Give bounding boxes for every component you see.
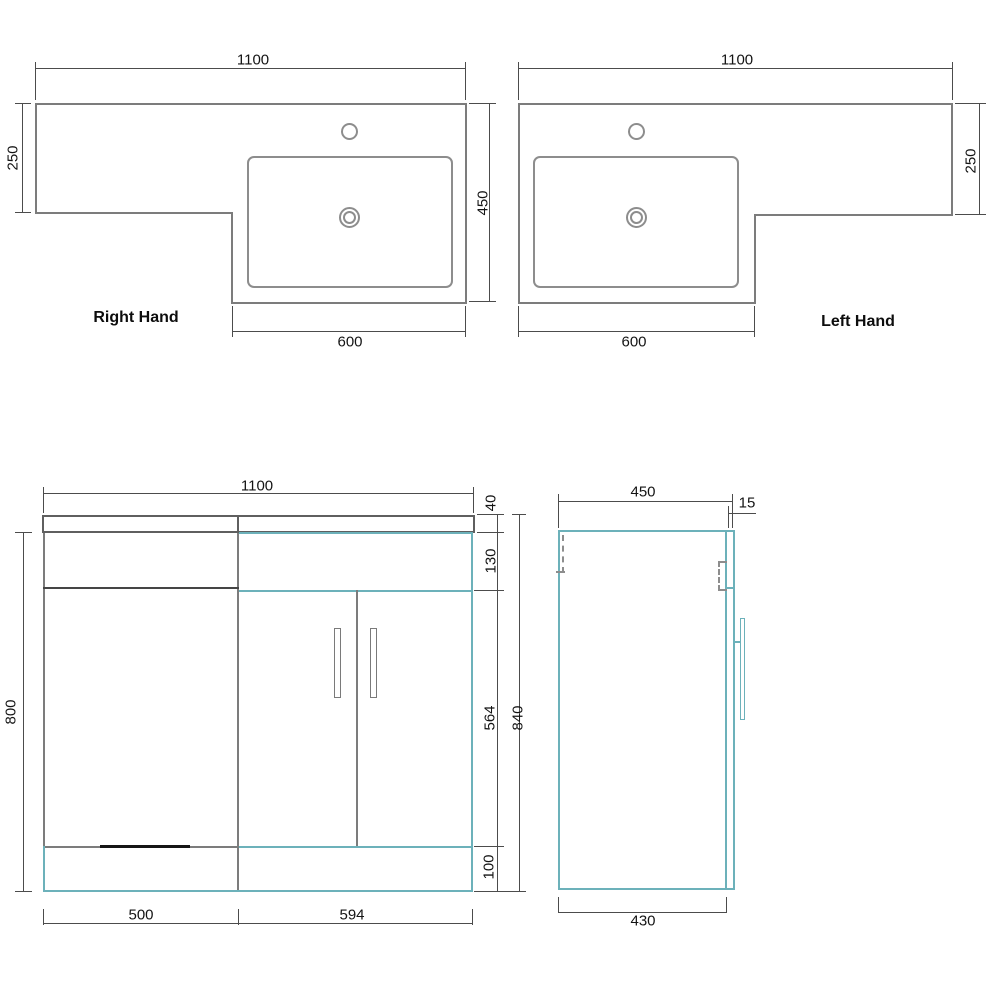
side-door-face [733, 530, 735, 890]
tick [955, 103, 986, 104]
tick [238, 909, 239, 925]
hinge-dashed-right-top [718, 561, 727, 563]
door-handle-right [370, 628, 377, 698]
dim-plinth-height: 100 [482, 854, 497, 879]
dim-door-height: 564 [483, 705, 498, 730]
tap-hole [341, 123, 358, 140]
left-panel-line [43, 587, 239, 589]
worktop-outline-step [754, 214, 756, 304]
dim-door-thickness: 15 [739, 496, 756, 511]
extension-line [754, 306, 755, 337]
dim-carcass-depth: 430 [630, 914, 655, 929]
door-handle-side [740, 618, 745, 720]
worktop-outline-deep-bottom [231, 302, 467, 304]
dim-upper-panel-height: 130 [484, 548, 499, 573]
tick [726, 897, 727, 913]
extension-line [232, 306, 233, 337]
extension-line [465, 62, 466, 100]
extension-line [465, 306, 466, 337]
dimension-line [23, 533, 24, 892]
tick [955, 214, 986, 215]
dim-overall-height: 840 [511, 705, 526, 730]
dim-basin-unit-width: 600 [337, 335, 362, 350]
worktop-outline-top [35, 103, 467, 105]
hinge-dashed-left [562, 535, 564, 573]
extension-line [473, 487, 474, 513]
extension-line [35, 62, 36, 100]
tick [43, 909, 44, 925]
dim-basin-unit-width: 600 [621, 335, 646, 350]
dim-overall-depth: 450 [630, 485, 655, 500]
tick [472, 909, 473, 925]
dimension-line [43, 923, 473, 924]
tick [469, 103, 496, 104]
dim-worktop-thickness: 40 [484, 495, 499, 512]
worktop-outline-shallow-bottom [754, 214, 953, 216]
plinth-left-edge [43, 846, 45, 892]
hinge-dashed-right [718, 561, 720, 591]
extension-line [477, 532, 503, 533]
tick [15, 891, 32, 892]
doors-bottom-line [239, 846, 473, 848]
worktop-outline-left [35, 103, 37, 214]
dimension-line [518, 331, 755, 332]
cabinet-left-edge [43, 533, 45, 847]
extension-line [477, 514, 503, 515]
worktop-outline-step [231, 212, 233, 304]
worktop-outline-right [465, 103, 467, 304]
side-carcass-top [558, 530, 735, 532]
worktop-outline-right [951, 103, 953, 216]
door-handle-left [334, 628, 341, 698]
view-label-right-hand: Right Hand [93, 310, 178, 326]
dim-worktop-depth: 250 [6, 145, 21, 170]
dim-overall-width: 1100 [721, 53, 753, 68]
tick [15, 532, 32, 533]
dim-overall-width: 1100 [241, 479, 273, 494]
worktop-outline-deep-bottom [518, 302, 756, 304]
extension-line [474, 590, 503, 591]
tick [512, 891, 526, 892]
extension-line [558, 494, 559, 528]
right-carcass-edge [471, 532, 473, 892]
dim-carcass-height: 800 [4, 699, 19, 724]
hinge-dashed-left-foot [556, 571, 565, 573]
dim-overall-width: 1100 [237, 53, 269, 68]
handle-stem [735, 641, 741, 643]
dimension-line [558, 501, 733, 502]
worktop-outline-shallow-bottom [35, 212, 233, 214]
technical-drawing-canvas: 1100 250 450 600 Right Hand [0, 0, 1001, 1001]
extension-line [43, 487, 44, 513]
extension-line [518, 306, 519, 337]
worktop-outline-top [518, 103, 953, 105]
dimension-line [232, 331, 466, 332]
dim-left-section-width: 500 [128, 908, 153, 923]
extension-line [518, 62, 519, 100]
tick [558, 897, 559, 913]
hinge-dashed-right-bottom [718, 589, 727, 591]
dim-basin-depth: 450 [476, 190, 491, 215]
dim-door-section-width: 594 [339, 908, 364, 923]
view-label-left-hand: Left Hand [821, 314, 895, 330]
extension-line [728, 506, 729, 528]
right-carcass-top [239, 532, 473, 534]
tick [469, 301, 496, 302]
side-carcass-left [558, 530, 560, 890]
dimension-line [519, 515, 520, 892]
side-carcass-bottom [558, 888, 735, 890]
left-bottom-accent [100, 845, 190, 848]
waste-drain-inner [343, 211, 356, 224]
worktop-outline-left [518, 103, 520, 304]
side-door-joint [727, 587, 733, 589]
door-divider [356, 590, 358, 847]
extension-line [732, 494, 733, 528]
side-carcass-right [725, 530, 727, 890]
tick [512, 514, 526, 515]
extension-line [952, 62, 953, 100]
worktop-split [237, 515, 239, 533]
plinth-bottom-line [43, 890, 473, 892]
tick [15, 212, 31, 213]
tick [15, 103, 31, 104]
waste-drain-inner [630, 211, 643, 224]
dimension-line [22, 104, 23, 213]
dim-worktop-depth: 250 [964, 148, 979, 173]
tap-hole [628, 123, 645, 140]
worktop-front [42, 515, 475, 533]
dimension-line [728, 513, 756, 514]
extension-line [474, 846, 503, 847]
